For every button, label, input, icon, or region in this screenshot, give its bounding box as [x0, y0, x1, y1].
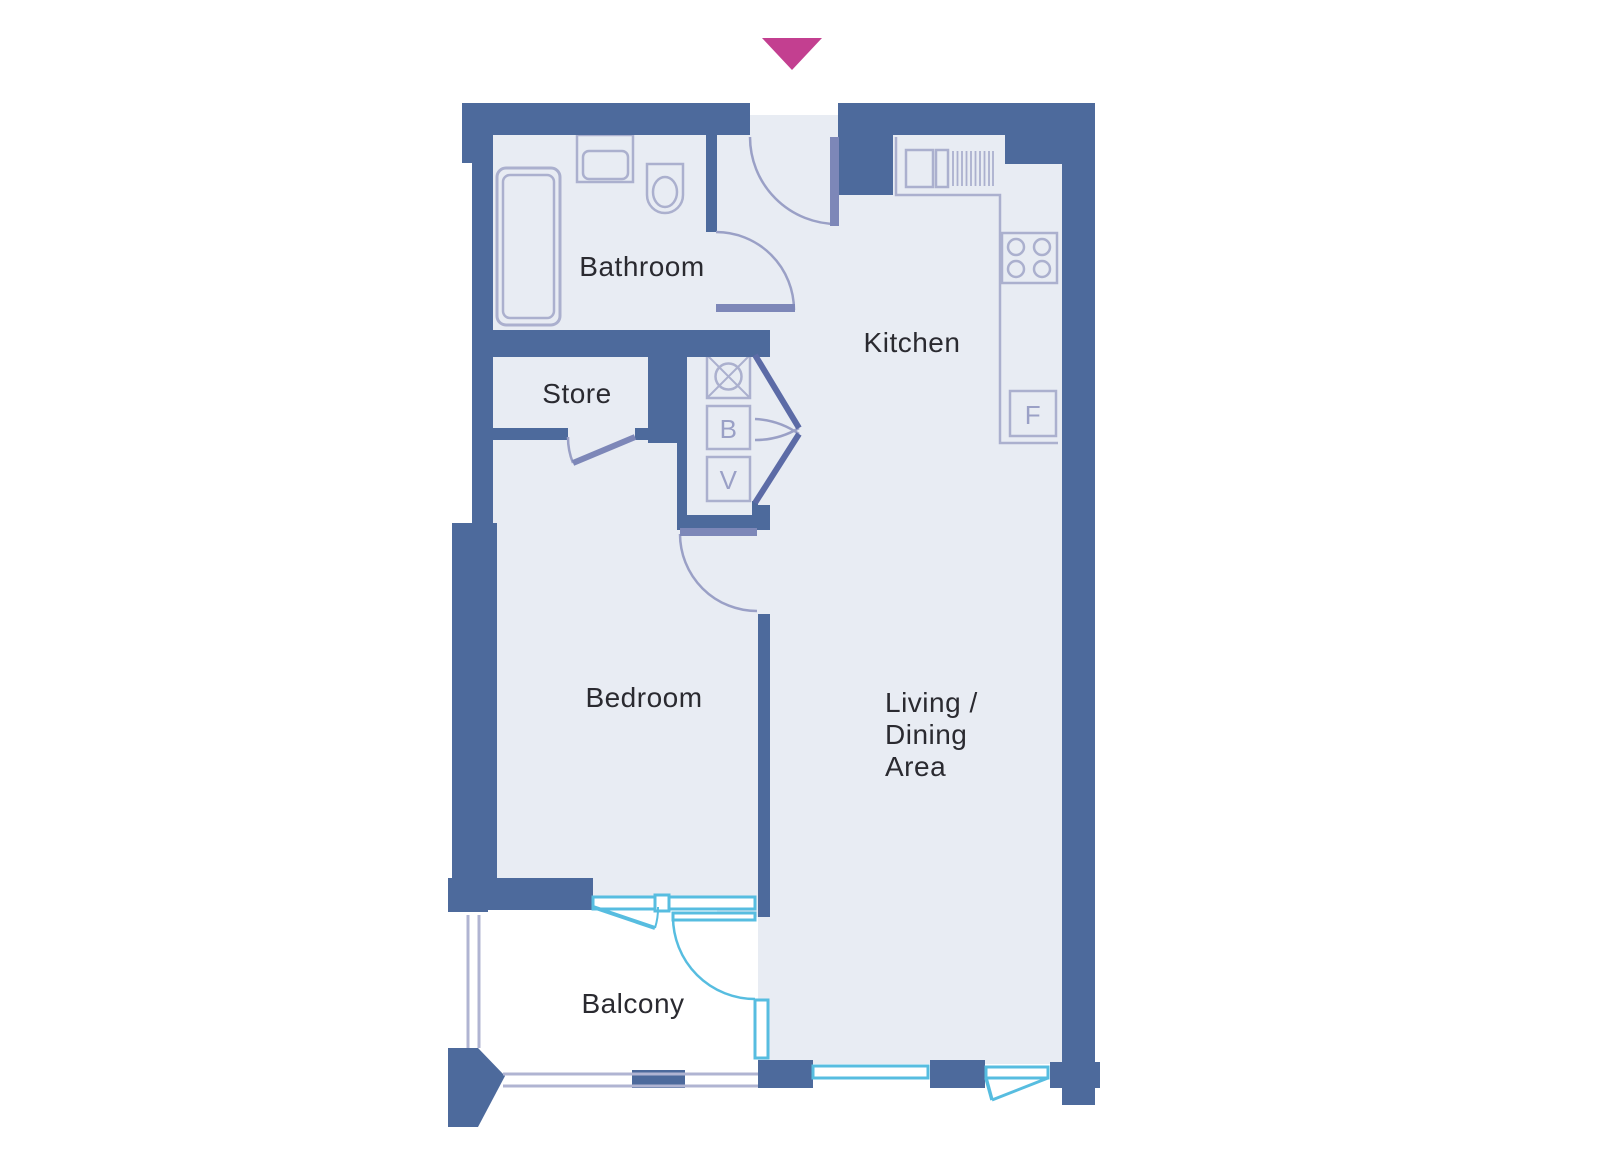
wall-closet-west	[677, 350, 687, 520]
bedroom-window	[593, 897, 755, 909]
balcony-label: Balcony	[581, 988, 684, 1019]
living-window-right	[986, 1067, 1048, 1078]
wall-closet-corner-block	[758, 505, 770, 530]
wall-kitchen-entry-pier	[838, 135, 893, 195]
wall-left-end-block	[448, 878, 488, 912]
wall-right	[1062, 103, 1095, 1105]
floor-plan-page: F B V	[0, 0, 1601, 1170]
wall-bedroom-living-partition	[758, 614, 770, 917]
living-label-line1: Living /	[885, 687, 978, 718]
wall-store-south-jamb	[635, 428, 648, 440]
boiler-label: B	[720, 414, 738, 444]
floor-entrance-threshold	[750, 115, 838, 137]
wall-balcony-sw-pier	[448, 1048, 505, 1127]
wall-closet-south	[677, 515, 770, 530]
floor-plan-svg: F B V	[0, 0, 1601, 1170]
entrance-arrow-icon	[762, 38, 822, 70]
wall-top-left	[462, 103, 750, 135]
ventilation-label: V	[720, 465, 738, 495]
living-balcony-side-panel	[755, 1000, 768, 1058]
wall-bathroom-south	[493, 330, 770, 357]
wall-bottom-pier-mid	[930, 1060, 985, 1088]
wall-left-upper	[472, 135, 493, 523]
wall-bathroom-east-stub	[706, 135, 717, 232]
wall-bottom-pier-left	[758, 1060, 813, 1088]
bathroom-label: Bathroom	[579, 251, 704, 282]
living-exterior-door	[986, 1078, 1048, 1100]
wall-bottom-right-corner	[1050, 1062, 1100, 1088]
bedroom-label: Bedroom	[585, 682, 702, 713]
living-window-left	[813, 1066, 928, 1078]
wall-left-pier	[452, 523, 497, 878]
store-label: Store	[542, 378, 611, 409]
wall-bedroom-south	[488, 878, 593, 910]
wall-kitchen-top	[838, 103, 1005, 135]
living-balcony-door	[673, 913, 768, 1058]
wall-store-east	[648, 330, 677, 443]
living-label-line2: Dining	[885, 719, 967, 750]
fridge-label: F	[1025, 400, 1041, 430]
wall-store-south-left	[493, 428, 568, 440]
kitchen-label: Kitchen	[864, 327, 961, 358]
living-label-line3: Area	[885, 751, 946, 782]
